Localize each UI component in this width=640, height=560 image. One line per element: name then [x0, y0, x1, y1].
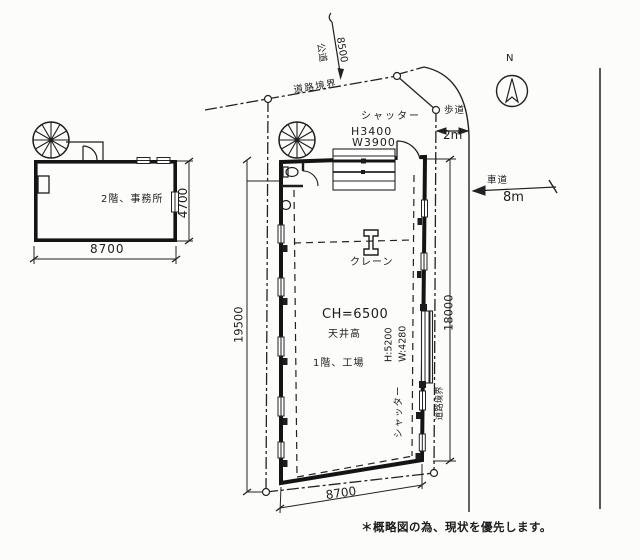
shutter-east-height: H:5200	[384, 322, 394, 368]
ceiling-height-label: CH=6500	[322, 308, 388, 321]
office-room-label: 2階、事務所	[101, 195, 163, 205]
office-closet	[38, 176, 49, 193]
factory-entry-door	[397, 141, 420, 163]
office-width-dim: 8700	[90, 243, 125, 255]
office-height-dim: 4700	[177, 181, 189, 225]
crane-icon	[364, 230, 378, 255]
toilet-room	[281, 162, 318, 210]
factory-room-label: 1階、工場	[313, 359, 364, 369]
drawing-note: ＊概略図の為、現状を優先します。	[361, 522, 552, 534]
road-boundary-right-label: 道路境界	[436, 381, 445, 425]
factory-spiral-stair-icon	[279, 122, 315, 158]
shutter-east-caption: シャッター	[394, 384, 404, 440]
shutter-top-caption: シャッター	[361, 112, 421, 122]
sidewalk-label: 歩道	[444, 106, 465, 116]
office-spiral-stair-icon	[33, 122, 69, 158]
crane-label: クレーン	[350, 258, 394, 268]
north-arrow	[497, 76, 528, 107]
factory-depth-dim: 19500	[233, 301, 245, 349]
ceiling-caption: 天井高	[328, 330, 361, 340]
office-balcony	[66, 142, 103, 160]
roadway-label: 車道	[487, 176, 508, 186]
shutter-top-width: W3900	[352, 137, 396, 148]
factory-top-shutter	[333, 149, 395, 190]
factory-east-dim: 18000	[443, 289, 455, 337]
roadway-dim: 8m	[503, 191, 524, 204]
shutter-east-width: W:4280	[398, 321, 408, 367]
sidewalk-dim: 2m	[443, 129, 462, 141]
north-label: N	[506, 54, 513, 64]
floor-plan-sheet: 2階、事務所 8700 4700 道路境界 公道 8500 シャッター H340…	[0, 0, 640, 560]
factory-east-shutter	[419, 304, 433, 388]
